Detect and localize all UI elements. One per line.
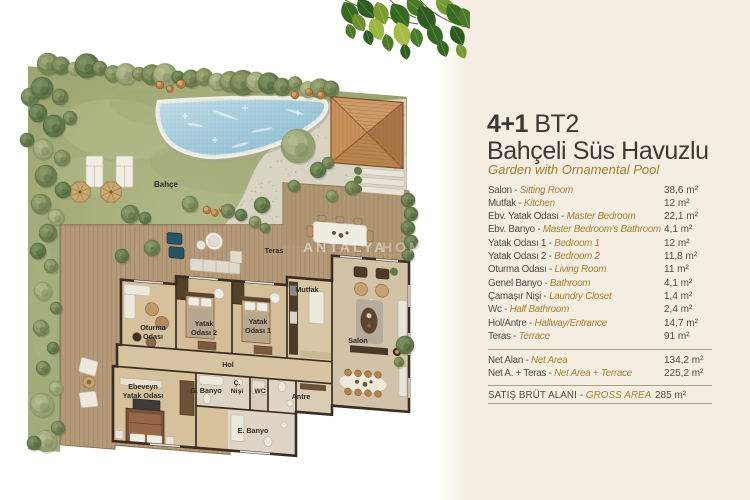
svg-text:E. Banyo: E. Banyo <box>238 426 269 435</box>
svg-text:Yatak: Yatak <box>195 319 214 328</box>
svg-text:Odası 2: Odası 2 <box>191 328 217 337</box>
svg-text:Yatak Odası: Yatak Odası <box>123 391 164 400</box>
svg-text:Teras: Teras <box>265 246 284 255</box>
svg-text:Odası 1: Odası 1 <box>245 326 271 335</box>
svg-text:Hol: Hol <box>222 360 234 369</box>
svg-text:Mutfak: Mutfak <box>295 285 318 294</box>
svg-text:Ç.: Ç. <box>234 380 241 387</box>
svg-text:WC: WC <box>254 388 265 395</box>
svg-text:Odası: Odası <box>143 332 163 341</box>
svg-text:Oturma: Oturma <box>140 323 167 332</box>
svg-text:Antre: Antre <box>292 392 311 401</box>
svg-text:HOM: HOM <box>382 239 424 255</box>
svg-text:ANTALYA: ANTALYA <box>303 239 387 255</box>
svg-text:Nişi: Nişi <box>231 388 244 395</box>
svg-text:Yatak: Yatak <box>249 317 268 326</box>
svg-text:Salon: Salon <box>348 336 368 345</box>
svg-text:Bahçe: Bahçe <box>154 180 179 189</box>
svg-text:G. Banyo: G. Banyo <box>190 386 222 395</box>
svg-text:Ebeveyn: Ebeveyn <box>128 382 158 391</box>
